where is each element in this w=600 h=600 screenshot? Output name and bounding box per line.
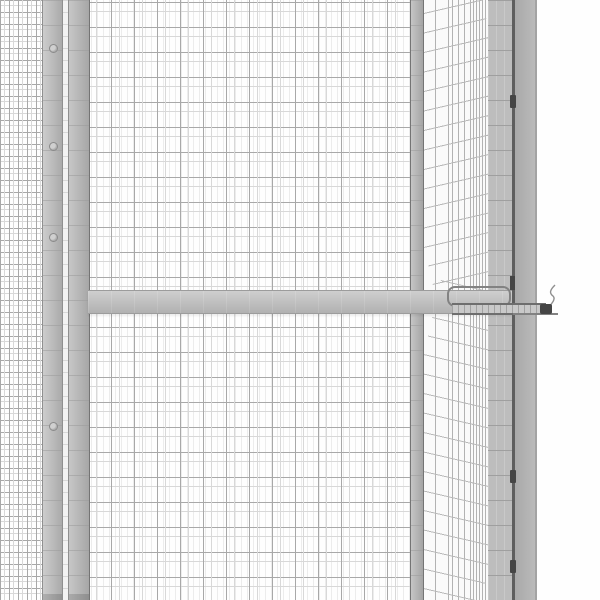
bolt-head (49, 44, 58, 53)
hinge-clip (510, 470, 516, 483)
latch-bolt-tip (540, 304, 552, 314)
left-corner-post (42, 0, 63, 600)
bolt-head (49, 142, 58, 151)
door-frame-post (68, 0, 90, 600)
hinge-clip (510, 95, 516, 108)
bolt-head (49, 233, 58, 242)
cage-outer-edge-strip (515, 0, 537, 600)
side-mesh-diagonal-wires-lower (422, 280, 488, 600)
cage-product-photo (0, 0, 600, 600)
left-side-mesh-panel (0, 0, 42, 600)
post-foot (43, 594, 62, 600)
bolt-head (49, 422, 58, 431)
corner-edge-line (512, 0, 515, 600)
side-mesh-diagonal-wires-upper (422, 0, 488, 320)
hinge-clip (510, 560, 516, 573)
latch-strike-plate (510, 276, 515, 290)
post-foot (69, 594, 89, 600)
